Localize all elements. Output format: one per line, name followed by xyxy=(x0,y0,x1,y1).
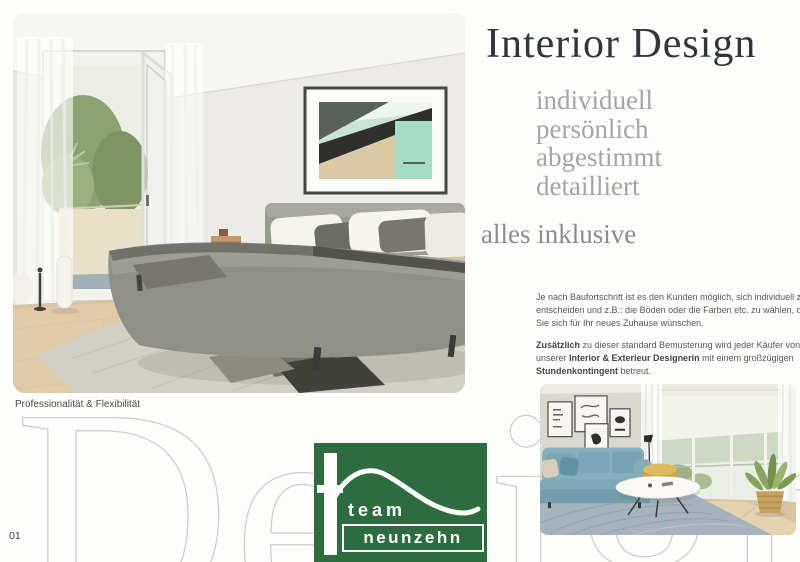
keyword: individuell xyxy=(536,86,662,115)
door-handle xyxy=(146,195,149,206)
keyword-list: individuell persönlich abgestimmt detail… xyxy=(536,86,662,200)
pillow xyxy=(424,212,465,258)
description-text: Je nach Baufortschritt ist es den Kunden… xyxy=(536,291,800,378)
bedroom-scene xyxy=(13,13,465,393)
footer-label: Professionalität & Flexibilität xyxy=(15,399,140,410)
bedroom-photo xyxy=(13,13,465,393)
keyword: abgestimmt xyxy=(536,143,662,172)
logo-text-neunzehn: neunzehn xyxy=(363,528,462,548)
sofa-cushion xyxy=(578,452,610,474)
keyword: detailliert xyxy=(536,172,662,201)
page-number: 01 xyxy=(9,530,21,542)
living-room-photo xyxy=(540,384,796,535)
brochure-page: Design xyxy=(0,0,800,562)
page-title: Interior Design xyxy=(486,20,756,68)
keyword: persönlich xyxy=(536,115,662,144)
paragraph: Je nach Baufortschritt ist es den Kunden… xyxy=(536,291,800,330)
teal-pillow xyxy=(559,457,579,477)
tagline-highlight: alles inklusive xyxy=(481,219,636,250)
wall-art xyxy=(305,88,446,193)
living-room-scene xyxy=(540,384,796,535)
paragraph: Zusätzlich zu dieser standard Bemusterun… xyxy=(536,339,800,378)
logo-text-team: team xyxy=(348,500,406,520)
logo: team neunzehn xyxy=(314,443,487,562)
beige-pillow xyxy=(541,458,560,478)
logo-text-box: neunzehn xyxy=(342,524,484,552)
bottle-vase xyxy=(57,256,72,308)
